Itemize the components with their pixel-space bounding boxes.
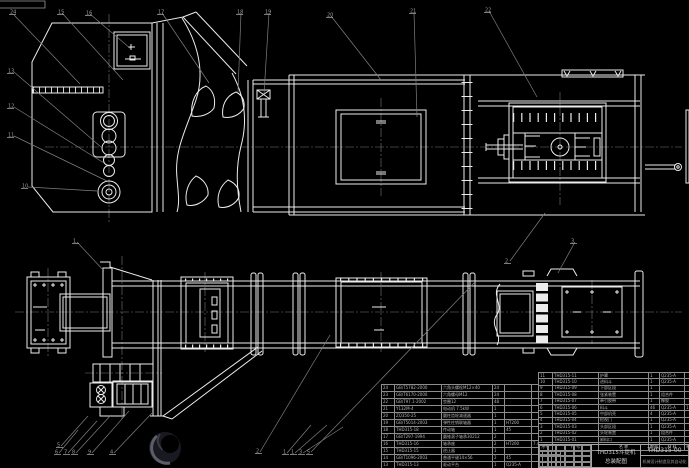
leader-line: [77, 242, 104, 271]
bom-cell: [505, 448, 532, 455]
bom-cell: THD315-16: [395, 441, 442, 448]
bom-cell: 14: [382, 455, 395, 462]
bom-cell: Q235-A: [505, 462, 532, 468]
bom-cell: 2: [493, 441, 505, 448]
bom-cell: 17: [382, 434, 395, 441]
bom-cell: [505, 434, 532, 441]
leader-line: [14, 15, 80, 84]
drawing-title: 总装配图: [605, 457, 627, 465]
bom-cell: 弹性柱销联轴器: [442, 420, 493, 427]
bom-cell: 45: [505, 455, 532, 462]
leader-line: [331, 16, 381, 80]
bom-cell: GB/T6170-2000: [395, 392, 442, 399]
bom-cell: [505, 406, 532, 413]
bom-cell: GB/T5014-2003: [395, 420, 442, 427]
bom-table-right: 11THD315-11护罩1Q235-A10THD315-10进料斗1Q235-…: [538, 372, 689, 451]
leader-line: [489, 11, 537, 97]
organization: 机械设计制造及其自动化: [641, 456, 688, 467]
bom-cell: 六角螺母M12: [442, 392, 493, 399]
bom-cell: 24: [493, 385, 505, 392]
leader-line: [414, 12, 417, 117]
bom-cell: GB/T1096-2003: [395, 455, 442, 462]
bom-cell: 23: [382, 392, 395, 399]
bom-cell: Y132M-4: [395, 406, 442, 413]
drawing-number-cell: THD315-00 机械设计制造及其自动化: [641, 445, 688, 467]
bom-cell: 普通平键14×56: [442, 455, 493, 462]
bom-cell: [505, 413, 532, 420]
bom-cell: 1: [493, 448, 505, 455]
bom-cell: THD315-13: [395, 462, 442, 468]
bom-cell: 48: [493, 399, 505, 406]
bom-cell: GB/T5782-2000: [395, 385, 442, 392]
bom-cell: 1: [493, 413, 505, 420]
bom-cell: 1: [493, 427, 505, 434]
leader-line: [238, 13, 241, 92]
bom-cell: 传动轴: [442, 427, 493, 434]
bom-cell: 轴承座: [442, 441, 493, 448]
drawing-canvas: 2415161718192021221312111012356789421135…: [0, 0, 689, 468]
bom-cell: 2: [493, 434, 505, 441]
bom-cell: 15: [382, 448, 395, 455]
bom-cell: 16: [382, 441, 395, 448]
bom-table-left: 24GB/T5782-2000六角头螺栓M12×402423GB/T6170-2…: [381, 384, 561, 468]
bom-cell: 1: [493, 406, 505, 413]
leader-line: [260, 335, 330, 452]
leader-line: [92, 411, 129, 453]
bom-cell: 45: [505, 427, 532, 434]
bom-cell: 24: [382, 385, 395, 392]
bom-cell: 圆柱齿轮减速器: [442, 413, 493, 420]
bom-cell: 1: [493, 420, 505, 427]
bom-cell: [505, 392, 532, 399]
drawing-number: THD315-00: [641, 445, 688, 456]
watermark-logo: [149, 432, 181, 464]
leader-line: [14, 72, 101, 147]
leader-line: [28, 187, 97, 191]
bom-cell: 2: [493, 455, 505, 462]
bom-cell: 24: [493, 392, 505, 399]
bom-cell: [505, 399, 532, 406]
product-name: THD315斗提机: [597, 448, 636, 456]
leader-line: [76, 415, 111, 453]
bom-cell: 逆止器: [442, 448, 493, 455]
leader-line: [264, 13, 269, 94]
bom-cell: GB/T297-1994: [395, 434, 442, 441]
bom-cell: 22: [382, 399, 395, 406]
bom-cell: 电动机 7.5kW: [442, 406, 493, 413]
bom-cell: 垫圈12: [442, 399, 493, 406]
bom-cell: THD315-15: [395, 448, 442, 455]
bom-cell: GB/T97.1-2002: [395, 399, 442, 406]
bom-cell: 13: [382, 462, 395, 468]
leader-line: [14, 107, 104, 163]
bom-cell: 六角头螺栓M12×40: [442, 385, 493, 392]
leader-line: [558, 242, 575, 273]
bom-cell: 1: [493, 462, 505, 468]
bom-cell: HT200: [505, 441, 532, 448]
bom-cell: 19: [382, 420, 395, 427]
leader-line: [114, 413, 152, 453]
bom-cell: 驱动平台: [442, 462, 493, 468]
leader-line: [510, 213, 545, 261]
drawing-title-cell: THD315斗提机 总装配图: [591, 445, 641, 467]
frame-corner: [0, 1, 45, 8]
top-view: [32, 12, 689, 215]
bom-cell: 18: [382, 427, 395, 434]
leader-line: [61, 416, 88, 446]
bom-cell: [505, 385, 532, 392]
bom-cell: THD315-18: [395, 427, 442, 434]
title-block: THD315斗提机 总装配图 THD315-00 机械设计制造及其自动化: [538, 444, 689, 468]
bom-cell: HT200: [505, 420, 532, 427]
revision-grid: [539, 445, 591, 467]
bom-cell: 21: [382, 406, 395, 413]
bom-cell: ZQ350-25: [395, 413, 442, 420]
bom-cell: 20: [382, 413, 395, 420]
bom-cell: 圆锥滚子轴承30212: [442, 434, 493, 441]
